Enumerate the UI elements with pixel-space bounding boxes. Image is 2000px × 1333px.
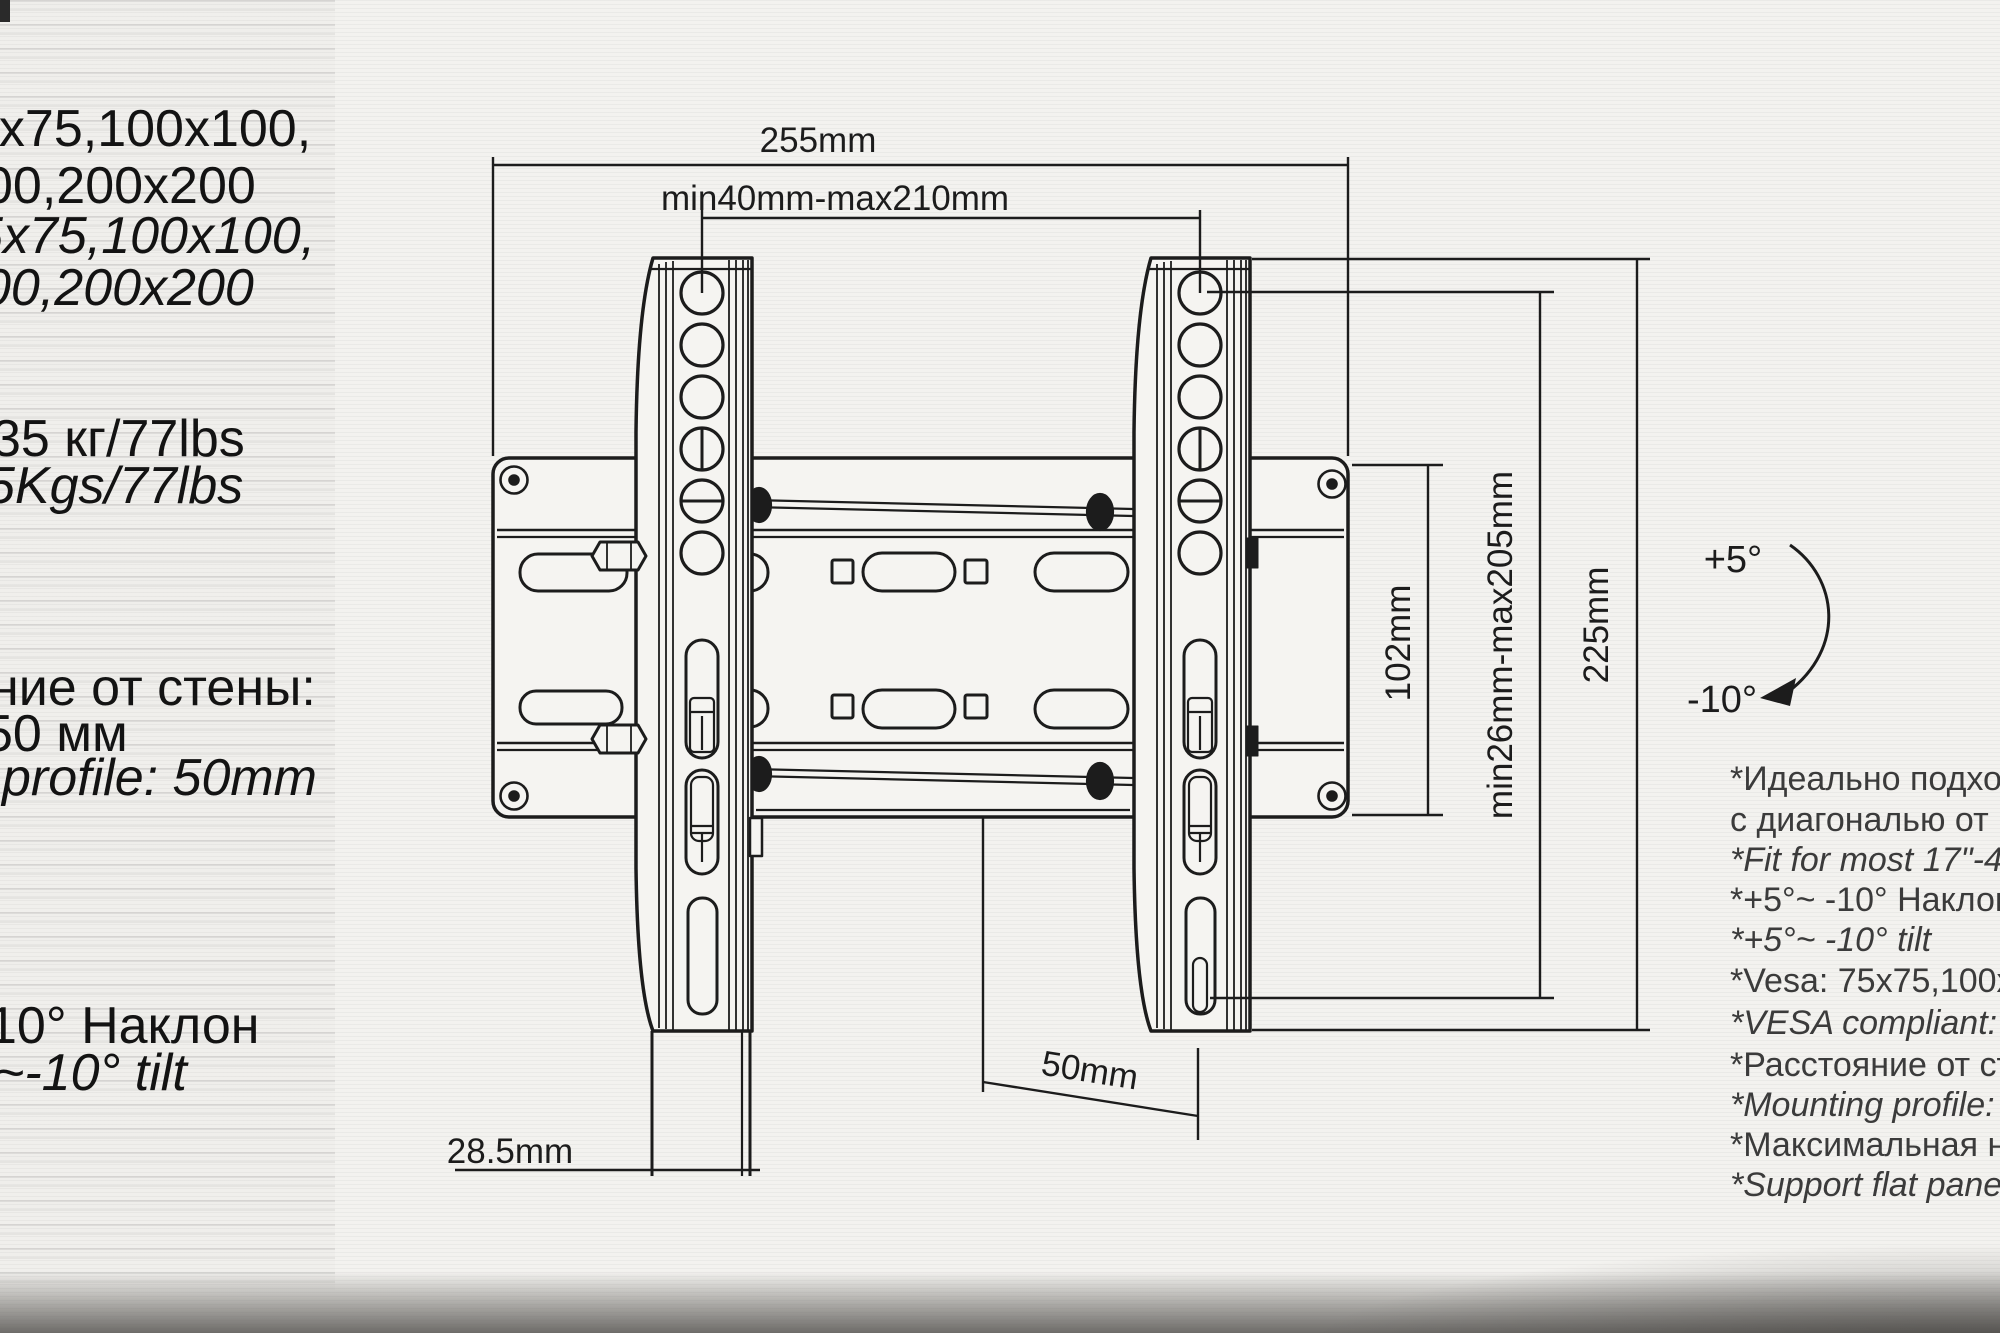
note-line-ideal-ru: *Идеально подхо [1730, 762, 2000, 796]
note-line-diagonal-ru: с диагональю от [1730, 803, 1989, 837]
left-rail-foot [652, 1031, 750, 1176]
tilt-arc-curve-icon [1788, 545, 1829, 692]
note-line-fit-en: *Fit for most 17"-4 [1730, 843, 2000, 877]
dim-label-min40-max210: min40mm-max210mm [661, 179, 1009, 218]
dim-label-min26-max205: min26mm-max205mm [1481, 471, 1520, 819]
dim-label-28-5mm: 28.5mm [447, 1132, 573, 1171]
note-line-vesa-ru: *Vesa: 75x75,100x [1730, 964, 2000, 998]
note-line-vesa-en: *VESA compliant: [1730, 1006, 1997, 1040]
note-line-maxload-ru: *Максимальная н [1730, 1128, 2000, 1162]
rail-clip-tab [750, 818, 762, 856]
note-line-tilt-en: *+5°~ -10° tilt [1730, 923, 1931, 957]
note-line-profile-en: *Mounting profile: [1730, 1088, 1995, 1122]
dim-label-225mm: 225mm [1577, 567, 1616, 684]
rail-spring-clip [1246, 726, 1258, 756]
scan-corner-artifact [0, 0, 10, 22]
dim-label-102mm: 102mm [1379, 585, 1418, 702]
dim-label-50mm: 50mm [1039, 1044, 1141, 1098]
note-line-wall-ru: *Расстояние от ст [1730, 1048, 2000, 1082]
tilt-down-label: -10° [1687, 679, 1757, 721]
tilt-arc: +5° -10° [1687, 539, 1829, 721]
tilt-up-label: +5° [1704, 539, 1763, 581]
tilt-arrowhead-icon [1760, 678, 1796, 706]
note-line-support-en: *Support flat pane [1730, 1168, 2000, 1202]
scan-page: 5x75,100x100, 00,200x200 5x75,100x100, 0… [0, 0, 2000, 1333]
right-rail [1134, 258, 1258, 1031]
mount-diagram: 255mm min40mm-max210mm 102mm min26mm-max… [0, 0, 2000, 1333]
rail-spring-clip [1246, 538, 1258, 568]
scan-shadow-corner [1300, 1243, 2000, 1333]
note-line-tilt-ru: *+5°~ -10° Наклон [1730, 883, 2000, 917]
dim-label-255mm: 255mm [760, 121, 877, 160]
